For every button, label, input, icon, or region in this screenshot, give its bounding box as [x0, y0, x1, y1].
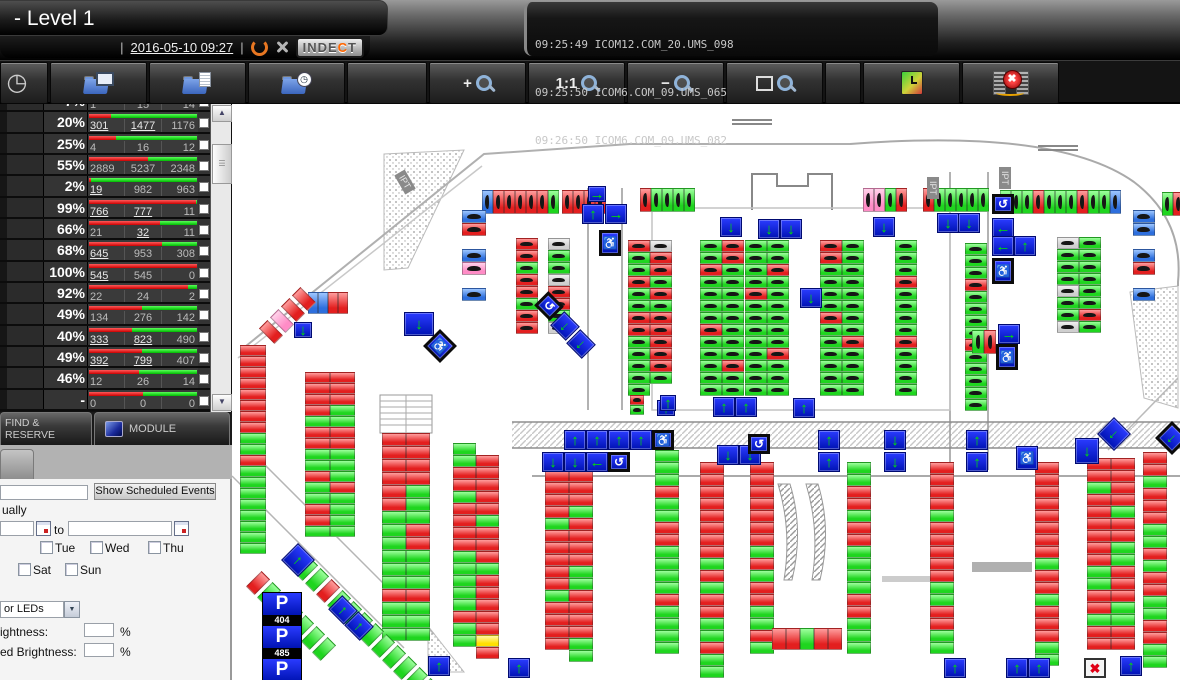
- parking-space[interactable]: [545, 482, 569, 494]
- parking-space[interactable]: [382, 459, 406, 472]
- datetime-display[interactable]: 2016-05-10 09:27: [131, 40, 234, 55]
- row-checkbox[interactable]: [198, 112, 210, 131]
- parking-space[interactable]: [1057, 273, 1079, 285]
- parking-space[interactable]: [406, 576, 430, 589]
- parking-space[interactable]: [1143, 632, 1167, 644]
- parking-space[interactable]: [240, 532, 266, 543]
- parking-space[interactable]: [930, 642, 954, 654]
- parking-space[interactable]: [700, 360, 722, 372]
- parking-space[interactable]: [1035, 510, 1059, 522]
- parking-space[interactable]: [628, 324, 650, 336]
- parking-space[interactable]: [1077, 190, 1088, 214]
- tab-module[interactable]: MODULE: [94, 412, 230, 445]
- parking-space[interactable]: [814, 628, 828, 650]
- table-row[interactable]: 20%30114771176: [0, 112, 210, 133]
- total-count[interactable]: 32: [124, 226, 161, 238]
- parking-space[interactable]: [842, 240, 864, 252]
- table-row[interactable]: -000: [0, 390, 210, 411]
- parking-space[interactable]: [569, 578, 593, 590]
- parking-space[interactable]: [1143, 488, 1167, 500]
- parking-space[interactable]: [476, 635, 499, 647]
- parking-space[interactable]: [700, 534, 724, 546]
- parking-space[interactable]: [406, 511, 430, 524]
- down-arrow-sign[interactable]: ↓: [884, 452, 906, 472]
- parking-space[interactable]: [453, 623, 476, 635]
- parking-space[interactable]: [930, 558, 954, 570]
- parking-space[interactable]: [330, 405, 355, 416]
- parking-space[interactable]: [476, 551, 499, 563]
- down-arrow-sign[interactable]: ↓: [1075, 438, 1099, 464]
- parking-space[interactable]: [630, 405, 644, 415]
- parking-space[interactable]: [700, 474, 724, 486]
- parking-space[interactable]: [406, 472, 430, 485]
- parking-space[interactable]: [745, 384, 767, 396]
- parking-space[interactable]: [548, 238, 570, 250]
- parking-space[interactable]: [330, 449, 355, 460]
- row-checkbox[interactable]: [198, 134, 210, 153]
- parking-space[interactable]: [965, 291, 987, 303]
- parking-space[interactable]: [406, 589, 430, 602]
- parking-space[interactable]: [569, 638, 593, 650]
- parking-space[interactable]: [1111, 566, 1135, 578]
- parking-space[interactable]: [1057, 309, 1079, 321]
- uturn-arrow-sign[interactable]: ↺: [608, 452, 630, 472]
- parking-space[interactable]: [545, 494, 569, 506]
- parking-space[interactable]: [745, 360, 767, 372]
- parking-space[interactable]: [700, 264, 722, 276]
- parking-space[interactable]: [930, 474, 954, 486]
- parking-space[interactable]: [640, 188, 651, 212]
- left-arrow-sign[interactable]: ←: [992, 236, 1014, 256]
- row-checkbox[interactable]: [198, 219, 210, 238]
- parking-space[interactable]: [453, 539, 476, 551]
- parking-space[interactable]: [722, 372, 744, 384]
- parking-space[interactable]: [1111, 638, 1135, 650]
- parking-space[interactable]: [1087, 470, 1111, 482]
- parking-space[interactable]: [700, 240, 722, 252]
- parking-space[interactable]: [650, 336, 672, 348]
- parking-space[interactable]: [1035, 522, 1059, 534]
- parking-space[interactable]: [722, 276, 744, 288]
- parking-space[interactable]: [842, 288, 864, 300]
- parking-space[interactable]: [1035, 474, 1059, 486]
- parking-space[interactable]: [453, 587, 476, 599]
- parking-space[interactable]: [382, 563, 406, 576]
- led-select[interactable]: or LEDs: [0, 601, 64, 618]
- parking-space[interactable]: [895, 336, 917, 348]
- parking-space[interactable]: [965, 399, 987, 411]
- parking-space[interactable]: [820, 372, 842, 384]
- table-row[interactable]: 46%122614: [0, 368, 210, 389]
- parking-space[interactable]: [548, 262, 570, 274]
- parking-space[interactable]: [965, 279, 987, 291]
- parking-space[interactable]: [842, 360, 864, 372]
- parking-space[interactable]: [628, 312, 650, 324]
- parking-space[interactable]: [476, 527, 499, 539]
- parking-space[interactable]: [847, 498, 871, 510]
- up-arrow-sign[interactable]: ↑: [944, 658, 966, 678]
- parking-space[interactable]: [1035, 606, 1059, 618]
- parking-space[interactable]: [406, 433, 430, 446]
- up-arrow-sign[interactable]: ↑: [1120, 656, 1142, 676]
- parking-space[interactable]: [240, 510, 266, 521]
- parking-space[interactable]: [767, 336, 789, 348]
- parking-space[interactable]: [842, 324, 864, 336]
- parking-space[interactable]: [382, 472, 406, 485]
- parking-space[interactable]: [750, 546, 774, 558]
- parking-space[interactable]: [1111, 614, 1135, 626]
- parking-space[interactable]: [406, 459, 430, 472]
- parking-space[interactable]: [453, 575, 476, 587]
- parking-space[interactable]: [650, 276, 672, 288]
- parking-space[interactable]: [1066, 190, 1077, 214]
- occupied-count[interactable]: 645: [88, 247, 124, 259]
- parking-space[interactable]: [1143, 512, 1167, 524]
- parking-space[interactable]: [820, 240, 842, 252]
- total-count[interactable]: 823: [124, 333, 161, 345]
- table-row[interactable]: 49%392799407: [0, 347, 210, 368]
- parking-space[interactable]: [700, 642, 724, 654]
- parking-space[interactable]: [767, 348, 789, 360]
- parking-space[interactable]: [750, 606, 774, 618]
- parking-space[interactable]: [895, 276, 917, 288]
- show-scheduled-events-button[interactable]: Show Scheduled Events: [94, 483, 216, 500]
- parking-space[interactable]: [1162, 192, 1173, 216]
- parking-space[interactable]: [820, 384, 842, 396]
- parking-space[interactable]: [1079, 261, 1101, 273]
- occupied-count[interactable]: 19: [88, 183, 124, 195]
- parking-space[interactable]: [745, 312, 767, 324]
- parking-space[interactable]: [305, 416, 330, 427]
- total-count[interactable]: 777: [124, 205, 161, 217]
- down-arrow-sign[interactable]: ↓: [800, 288, 822, 308]
- scrollbar-thumb[interactable]: ☰: [212, 144, 232, 184]
- parking-space[interactable]: [655, 522, 679, 534]
- parking-space[interactable]: [330, 438, 355, 449]
- parking-space[interactable]: [847, 546, 871, 558]
- parking-space[interactable]: [493, 190, 504, 214]
- parking-space[interactable]: [930, 582, 954, 594]
- parking-space[interactable]: [956, 188, 967, 212]
- wc-arrow-sign[interactable]: ♿: [996, 344, 1018, 370]
- parking-space[interactable]: [655, 462, 679, 474]
- parking-space[interactable]: [453, 563, 476, 575]
- parking-space[interactable]: [476, 503, 499, 515]
- parking-space[interactable]: [1057, 249, 1079, 261]
- checkbox-thu[interactable]: [148, 541, 161, 554]
- parking-space[interactable]: [895, 312, 917, 324]
- parking-space[interactable]: [1035, 582, 1059, 594]
- parking-space[interactable]: [655, 642, 679, 654]
- parking-space[interactable]: [895, 324, 917, 336]
- parking-space[interactable]: [1035, 462, 1059, 474]
- parking-space[interactable]: [406, 524, 430, 537]
- parking-space[interactable]: [745, 348, 767, 360]
- up-arrow-sign[interactable]: ↑: [586, 430, 608, 450]
- parking-space[interactable]: [476, 623, 499, 635]
- parking-space[interactable]: [1035, 546, 1059, 558]
- parking-space[interactable]: [700, 288, 722, 300]
- parking-space[interactable]: [453, 515, 476, 527]
- parking-space[interactable]: [895, 288, 917, 300]
- parking-space[interactable]: [930, 546, 954, 558]
- parking-space[interactable]: [406, 550, 430, 563]
- event-name-input[interactable]: [0, 485, 88, 500]
- parking-space[interactable]: [476, 539, 499, 551]
- parking-space[interactable]: [406, 615, 430, 628]
- parking-space[interactable]: [240, 466, 266, 477]
- down-arrow-sign[interactable]: ↓: [958, 213, 980, 233]
- total-count[interactable]: 799: [124, 354, 161, 366]
- row-checkbox[interactable]: [198, 347, 210, 366]
- parking-space[interactable]: [700, 486, 724, 498]
- parking-space[interactable]: [1143, 608, 1167, 620]
- parking-space[interactable]: [1143, 656, 1167, 668]
- parking-space[interactable]: [330, 471, 355, 482]
- parking-space[interactable]: [240, 455, 266, 466]
- parking-space[interactable]: [545, 590, 569, 602]
- parking-space[interactable]: [722, 264, 744, 276]
- down-arrow-sign[interactable]: ↓: [873, 217, 895, 237]
- parking-space[interactable]: [745, 324, 767, 336]
- parking-space[interactable]: [1035, 558, 1059, 570]
- spacer-button[interactable]: [347, 62, 427, 104]
- down-arrow-sign[interactable]: ↓: [937, 213, 959, 233]
- right-arrow-sign[interactable]: →: [605, 204, 627, 224]
- parking-space[interactable]: [847, 582, 871, 594]
- parking-space[interactable]: [767, 324, 789, 336]
- parking-space[interactable]: [1111, 602, 1135, 614]
- parking-space[interactable]: [240, 444, 266, 455]
- parking-space[interactable]: [305, 526, 330, 537]
- parking-space[interactable]: [240, 521, 266, 532]
- parking-space[interactable]: [330, 515, 355, 526]
- parking-space[interactable]: [745, 276, 767, 288]
- parking-space[interactable]: [700, 384, 722, 396]
- parking-space[interactable]: [847, 570, 871, 582]
- parking-space[interactable]: [767, 276, 789, 288]
- occupied-count[interactable]: 766: [88, 205, 124, 217]
- up-arrow-sign[interactable]: ↑: [428, 656, 450, 676]
- parking-space[interactable]: [1079, 285, 1101, 297]
- parking-space[interactable]: [545, 542, 569, 554]
- parking-space[interactable]: [1087, 566, 1111, 578]
- parking-space[interactable]: [842, 252, 864, 264]
- parking-space[interactable]: [453, 527, 476, 539]
- row-checkbox[interactable]: [198, 155, 210, 174]
- parking-space[interactable]: [722, 288, 744, 300]
- parking-space[interactable]: [767, 300, 789, 312]
- parking-space[interactable]: [1035, 498, 1059, 510]
- parking-space[interactable]: [1057, 297, 1079, 309]
- parking-space[interactable]: [240, 543, 266, 554]
- parking-space[interactable]: [847, 462, 871, 474]
- down-arrow-sign[interactable]: ↓: [758, 219, 780, 239]
- parking-space[interactable]: [406, 537, 430, 550]
- parking-space[interactable]: [842, 372, 864, 384]
- parking-space[interactable]: [330, 394, 355, 405]
- parking-space[interactable]: [700, 546, 724, 558]
- parking-space[interactable]: [330, 427, 355, 438]
- down-arrow-sign[interactable]: ↓: [404, 312, 434, 336]
- event-log[interactable]: 09:25:49 ICOM12.COM_20.UMS_098 09:25:50 …: [524, 2, 938, 56]
- parking-space[interactable]: [516, 310, 538, 322]
- parking-space[interactable]: [382, 498, 406, 511]
- parking-space[interactable]: [330, 416, 355, 427]
- parking-space[interactable]: [1087, 578, 1111, 590]
- down-arrow-sign[interactable]: ↓: [542, 452, 564, 472]
- parking-space[interactable]: [673, 188, 684, 212]
- parking-space[interactable]: [930, 570, 954, 582]
- parking-space[interactable]: [305, 427, 330, 438]
- parking-space[interactable]: [476, 611, 499, 623]
- parking-space[interactable]: [305, 515, 330, 526]
- parking-space[interactable]: [700, 594, 724, 606]
- parking-space[interactable]: [1035, 642, 1059, 654]
- parking-space[interactable]: [1057, 285, 1079, 297]
- parking-space[interactable]: [453, 455, 476, 467]
- parking-space[interactable]: [1111, 542, 1135, 554]
- down-arrow-sign[interactable]: ↓: [720, 217, 742, 237]
- parking-space[interactable]: [1111, 458, 1135, 470]
- parking-space[interactable]: [684, 188, 695, 212]
- parking-space[interactable]: [655, 594, 679, 606]
- parking-space[interactable]: [516, 322, 538, 334]
- parking-space[interactable]: [965, 387, 987, 399]
- parking-space[interactable]: [1143, 536, 1167, 548]
- parking-space[interactable]: [820, 324, 842, 336]
- up-arrow-sign[interactable]: ↑: [818, 452, 840, 472]
- parking-space[interactable]: [895, 348, 917, 360]
- parking-space[interactable]: [655, 474, 679, 486]
- uturn-arrow-sign[interactable]: ↺: [748, 434, 770, 454]
- parking-space[interactable]: [847, 510, 871, 522]
- dropdown-arrow-icon[interactable]: ▼: [64, 601, 80, 618]
- parking-space[interactable]: [516, 262, 538, 274]
- parking-space[interactable]: [1079, 237, 1101, 249]
- parking-space[interactable]: [842, 348, 864, 360]
- parking-space[interactable]: [655, 570, 679, 582]
- parking-space[interactable]: [700, 348, 722, 360]
- parking-space[interactable]: [820, 264, 842, 276]
- parking-space[interactable]: [628, 288, 650, 300]
- parking-space[interactable]: [650, 240, 672, 252]
- row-checkbox[interactable]: [198, 390, 210, 409]
- parking-space[interactable]: [462, 210, 486, 223]
- parking-space[interactable]: [655, 534, 679, 546]
- parking-space[interactable]: [772, 628, 786, 650]
- parking-space[interactable]: [1133, 249, 1155, 262]
- parking-space[interactable]: [842, 312, 864, 324]
- parking-space[interactable]: [382, 615, 406, 628]
- parking-space[interactable]: [745, 288, 767, 300]
- open-level-button[interactable]: [50, 62, 147, 104]
- dimmed-brightness-input[interactable]: [84, 643, 114, 657]
- parking-space[interactable]: [750, 642, 774, 654]
- parking-space[interactable]: [476, 599, 499, 611]
- scroll-down-button[interactable]: ▼: [212, 394, 232, 411]
- parking-space[interactable]: [1133, 262, 1155, 275]
- parking-space[interactable]: [930, 510, 954, 522]
- up-arrow-sign[interactable]: ↑: [508, 658, 530, 678]
- parking-space[interactable]: [965, 375, 987, 387]
- parking-space[interactable]: [516, 274, 538, 286]
- parking-space[interactable]: [750, 498, 774, 510]
- collapsed-subtab[interactable]: [0, 449, 34, 479]
- parking-space[interactable]: [651, 188, 662, 212]
- wc-arrow-sign[interactable]: ♿: [992, 258, 1014, 284]
- checkbox-tue[interactable]: [40, 541, 53, 554]
- parking-space[interactable]: [406, 446, 430, 459]
- parking-space[interactable]: [240, 433, 266, 444]
- parking-space[interactable]: [700, 324, 722, 336]
- parking-space[interactable]: [767, 288, 789, 300]
- parking-space[interactable]: [545, 602, 569, 614]
- parking-space[interactable]: [800, 628, 814, 650]
- parking-space[interactable]: [722, 300, 744, 312]
- open-report-button[interactable]: [149, 62, 246, 104]
- scroll-up-button[interactable]: ▲: [212, 105, 232, 122]
- parking-space[interactable]: [820, 312, 842, 324]
- occupied-count[interactable]: 301: [88, 119, 124, 131]
- parking-space[interactable]: [1057, 261, 1079, 273]
- parking-space[interactable]: [700, 276, 722, 288]
- parking-space[interactable]: [1087, 626, 1111, 638]
- parking-space[interactable]: [655, 606, 679, 618]
- parking-space[interactable]: [1087, 530, 1111, 542]
- parking-space[interactable]: [462, 223, 486, 236]
- parking-space[interactable]: [1087, 518, 1111, 530]
- parking-space[interactable]: [700, 606, 724, 618]
- parking-space[interactable]: [628, 348, 650, 360]
- parking-space[interactable]: [965, 315, 987, 327]
- parking-space[interactable]: [453, 491, 476, 503]
- parking-space[interactable]: [305, 460, 330, 471]
- parking-space[interactable]: [305, 438, 330, 449]
- parking-space[interactable]: [330, 526, 355, 537]
- parking-space[interactable]: [700, 252, 722, 264]
- parking-space[interactable]: [476, 467, 499, 479]
- wc-arrow-sign[interactable]: ♿: [1016, 446, 1038, 470]
- parking-space[interactable]: [655, 558, 679, 570]
- parking-space[interactable]: [630, 395, 644, 405]
- checkbox-sat[interactable]: [18, 563, 31, 576]
- parking-space[interactable]: [548, 190, 559, 214]
- parking-space[interactable]: [1111, 506, 1135, 518]
- parking-space[interactable]: [655, 618, 679, 630]
- parking-space[interactable]: [305, 394, 330, 405]
- parking-space[interactable]: [305, 449, 330, 460]
- parking-space[interactable]: [820, 348, 842, 360]
- parking-space[interactable]: [895, 300, 917, 312]
- parking-space[interactable]: [885, 188, 896, 212]
- up-arrow-sign[interactable]: ↑: [660, 395, 676, 411]
- parking-space[interactable]: [895, 360, 917, 372]
- parking-space[interactable]: [965, 267, 987, 279]
- left-arrow-sign[interactable]: ←: [992, 218, 1014, 238]
- parking-space[interactable]: [965, 255, 987, 267]
- parking-space[interactable]: [628, 276, 650, 288]
- parking-space[interactable]: [700, 618, 724, 630]
- parking-space[interactable]: [700, 372, 722, 384]
- parking-space[interactable]: [655, 450, 679, 462]
- parking-space[interactable]: [562, 190, 573, 214]
- parking-space[interactable]: [1035, 486, 1059, 498]
- parking-space[interactable]: [662, 188, 673, 212]
- up-arrow-sign[interactable]: ↑: [818, 430, 840, 450]
- occupied-count[interactable]: 333: [88, 333, 124, 345]
- row-checkbox[interactable]: [198, 304, 210, 323]
